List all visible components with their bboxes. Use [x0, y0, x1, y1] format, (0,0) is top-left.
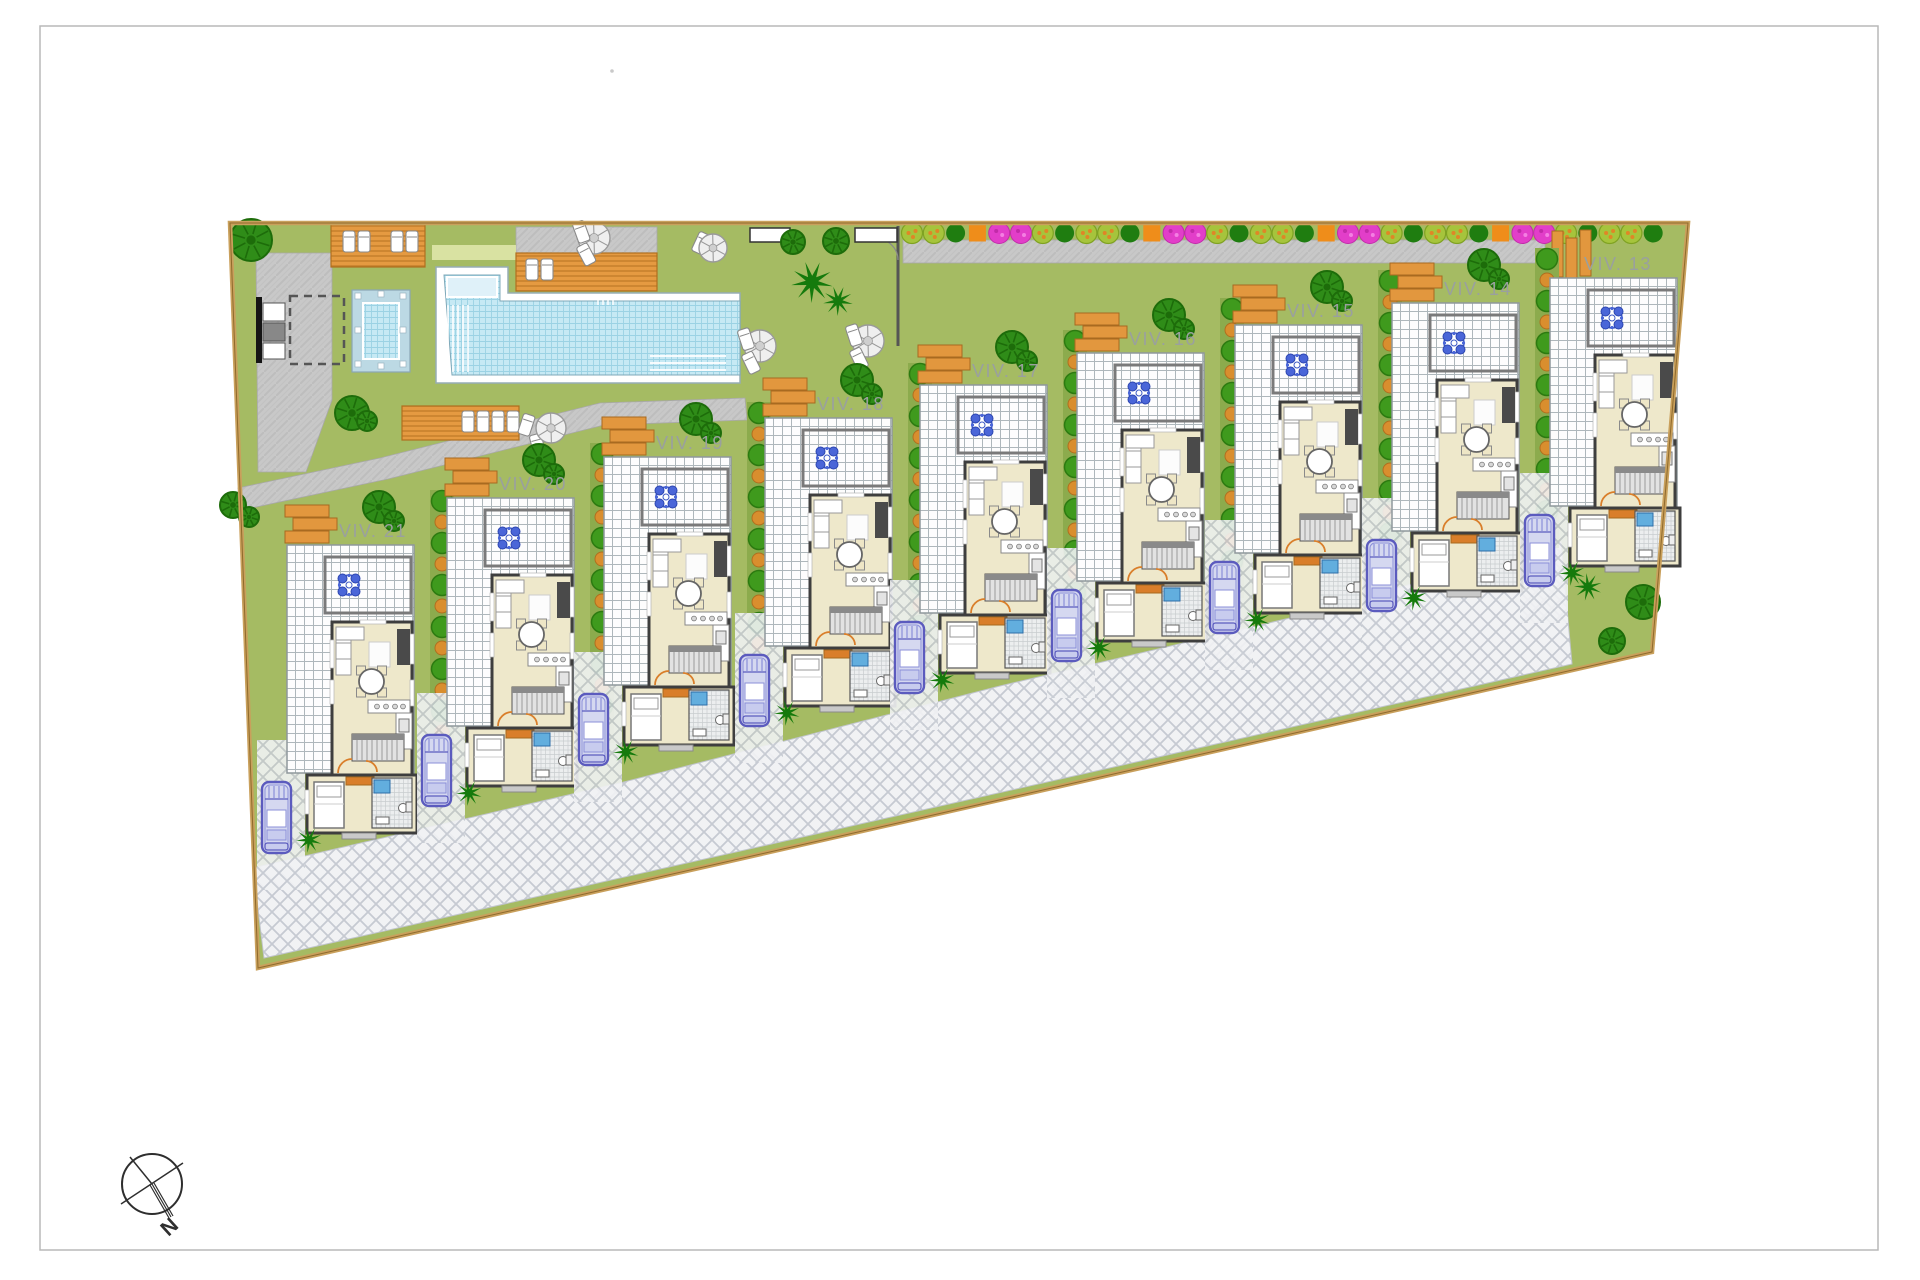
- sink: [559, 672, 569, 685]
- bush-dark: [1121, 224, 1140, 243]
- parasol-icon: [536, 413, 566, 443]
- bush-dark: [1055, 224, 1074, 243]
- bush-dark: [1404, 224, 1423, 243]
- tree-icon: [230, 219, 272, 261]
- spa-pool: [352, 290, 410, 372]
- stairs: [830, 607, 882, 634]
- wardrobe: [346, 777, 374, 785]
- planter-box: [1390, 289, 1434, 301]
- bathroom: [532, 731, 572, 781]
- bathroom: [1477, 536, 1517, 586]
- fountain-icon: [498, 527, 520, 549]
- sun-lounger-icon: [492, 411, 504, 432]
- sun-lounger-icon: [343, 231, 355, 252]
- rug: [1474, 400, 1495, 425]
- bush-lime: [1098, 223, 1119, 244]
- bush-lime: [923, 223, 944, 244]
- entry-step: [820, 706, 854, 712]
- bed: [474, 735, 504, 781]
- wardrobe: [663, 689, 691, 697]
- rug: [529, 595, 550, 620]
- dining-table: [676, 581, 701, 606]
- dining-table: [1622, 402, 1647, 427]
- car-icon: [422, 735, 451, 806]
- bathroom: [372, 778, 412, 828]
- flower-magenta: [1011, 223, 1032, 244]
- flower-magenta: [1338, 223, 1359, 244]
- tv-unit: [397, 629, 410, 665]
- villa-label: VIV. 20: [499, 474, 567, 494]
- fountain-icon: [816, 447, 838, 469]
- flower-magenta: [1163, 223, 1184, 244]
- planter-box: [602, 417, 646, 429]
- tv-unit: [1502, 387, 1515, 423]
- stairs: [669, 646, 721, 673]
- sink: [877, 592, 887, 605]
- entry-step: [1132, 641, 1166, 647]
- bush-lime: [1599, 223, 1620, 244]
- wardrobe: [1294, 557, 1322, 565]
- dining-table: [359, 669, 384, 694]
- bush-dark: [1230, 224, 1249, 243]
- shower: [691, 692, 707, 705]
- sink: [716, 631, 726, 644]
- sink: [1347, 499, 1357, 512]
- rug: [1159, 450, 1180, 475]
- stairs: [1615, 467, 1667, 494]
- fountain-icon: [1601, 307, 1623, 329]
- stairs: [1457, 492, 1509, 519]
- tree-icon: [781, 230, 805, 254]
- villa-label: VIV. 21: [339, 521, 407, 541]
- bathroom: [1162, 586, 1202, 636]
- fountain-icon: [1286, 354, 1308, 376]
- tv-unit: [1660, 362, 1673, 398]
- car-icon: [1367, 540, 1396, 611]
- sun-lounger-icon: [477, 411, 489, 432]
- rug: [686, 554, 707, 579]
- wardrobe: [1451, 535, 1479, 543]
- flower-magenta: [989, 223, 1010, 244]
- bush-lime: [1250, 223, 1271, 244]
- fountain-icon: [1443, 332, 1465, 354]
- sun-lounger-icon: [507, 411, 519, 432]
- bush-dark: [1644, 224, 1663, 243]
- bed: [947, 622, 977, 668]
- bush-dark: [1469, 224, 1488, 243]
- planter-box: [285, 531, 329, 543]
- wardrobe: [506, 730, 534, 738]
- flower-orange: [1143, 225, 1160, 242]
- bathroom: [1005, 618, 1045, 668]
- bed: [1104, 590, 1134, 636]
- bush-lime: [1272, 223, 1293, 244]
- bush-lime: [1032, 223, 1053, 244]
- shower: [1637, 513, 1653, 526]
- planter-box: [1241, 298, 1285, 310]
- dining-table: [519, 622, 544, 647]
- planter-box: [1083, 326, 1127, 338]
- tv-unit: [714, 541, 727, 577]
- planter-box: [285, 505, 329, 517]
- entry-step: [1605, 566, 1639, 572]
- sun-lounger-icon: [358, 231, 370, 252]
- planter-box: [1233, 311, 1277, 323]
- car-icon: [1525, 515, 1554, 586]
- parasol-icon: [699, 234, 727, 262]
- fountain-icon: [1128, 382, 1150, 404]
- tv-unit: [557, 582, 570, 618]
- dining-table: [837, 542, 862, 567]
- fountain-icon: [971, 414, 993, 436]
- bed: [1577, 515, 1607, 561]
- planter-box: [453, 471, 497, 483]
- car-icon: [579, 694, 608, 765]
- planter-box: [1233, 285, 1277, 297]
- bathroom: [850, 651, 890, 701]
- car-icon: [262, 782, 291, 853]
- stairs: [1142, 542, 1194, 569]
- planter-box: [1566, 238, 1577, 284]
- planter-box: [445, 458, 489, 470]
- wardrobe: [824, 650, 852, 658]
- planter-box: [763, 404, 807, 416]
- flower-orange: [1492, 225, 1509, 242]
- villa-label: VIV. 14: [1444, 279, 1512, 299]
- shower: [534, 733, 550, 746]
- bush-lime: [902, 223, 923, 244]
- bathroom: [1635, 511, 1675, 561]
- bush-lime: [1381, 223, 1402, 244]
- planter-box: [918, 345, 962, 357]
- sun-lounger-icon: [462, 411, 474, 432]
- flower-magenta: [1359, 223, 1380, 244]
- car-icon: [740, 655, 769, 726]
- planter-box: [445, 484, 489, 496]
- car-icon: [895, 622, 924, 693]
- bush-dark: [1295, 224, 1314, 243]
- shower: [1322, 560, 1338, 573]
- car-icon: [1052, 590, 1081, 661]
- tv-unit: [1345, 409, 1358, 445]
- villa-label: VIV. 17: [972, 361, 1040, 381]
- flower-magenta: [1185, 223, 1206, 244]
- stairs: [512, 687, 564, 714]
- sink: [399, 719, 409, 732]
- planter-box: [918, 371, 962, 383]
- wardrobe: [1609, 510, 1637, 518]
- tree-icon: [823, 228, 849, 254]
- entry-step: [1290, 613, 1324, 619]
- shower: [1007, 620, 1023, 633]
- entry-step: [1447, 591, 1481, 597]
- entry-step: [342, 833, 376, 839]
- shower: [852, 653, 868, 666]
- tree-icon: [1599, 628, 1625, 654]
- wardrobe: [979, 617, 1007, 625]
- rug: [1317, 422, 1338, 447]
- sun-lounger-icon: [541, 259, 553, 280]
- villa-label: VIV. 19: [656, 433, 724, 453]
- car-icon: [1210, 562, 1239, 633]
- stairs: [1300, 514, 1352, 541]
- page-speck: [610, 69, 614, 73]
- planter-box: [1398, 276, 1442, 288]
- dining-table: [1149, 477, 1174, 502]
- stairs: [352, 734, 404, 761]
- sun-lounger-icon: [391, 231, 403, 252]
- bathroom: [689, 690, 729, 740]
- tv-unit: [1030, 469, 1043, 505]
- rug: [369, 642, 390, 667]
- bed: [314, 782, 344, 828]
- rug: [1002, 482, 1023, 507]
- site-plan: VIV. 21 VIV. 20: [0, 0, 1920, 1280]
- dining-table: [992, 509, 1017, 534]
- tv-unit: [1187, 437, 1200, 473]
- planter-box: [771, 391, 815, 403]
- villa-label: VIV. 13: [1584, 254, 1652, 274]
- flower-orange: [1318, 225, 1335, 242]
- flower-orange: [969, 225, 986, 242]
- pergola-bench: [855, 228, 897, 242]
- bed: [631, 694, 661, 740]
- rug: [847, 515, 868, 540]
- bush-lime: [1447, 223, 1468, 244]
- sun-lounger-icon: [526, 259, 538, 280]
- bush-lime: [1076, 223, 1097, 244]
- villa-label: VIV. 15: [1287, 301, 1355, 321]
- flower-magenta: [1512, 223, 1533, 244]
- bush-lime: [1621, 223, 1642, 244]
- entry-step: [502, 786, 536, 792]
- tree-icon: [357, 411, 377, 431]
- planter-box: [1390, 263, 1434, 275]
- rug: [1632, 375, 1653, 400]
- villa-label: VIV. 16: [1129, 329, 1197, 349]
- sink: [1504, 477, 1514, 490]
- bush-lime: [1425, 223, 1446, 244]
- dining-table: [1464, 427, 1489, 452]
- stairs: [985, 574, 1037, 601]
- entry-step: [975, 673, 1009, 679]
- plan-page: VIV. 21 VIV. 20: [0, 0, 1920, 1280]
- shower: [1164, 588, 1180, 601]
- sink: [1189, 527, 1199, 540]
- bed: [1262, 562, 1292, 608]
- bush-lime: [1207, 223, 1228, 244]
- planter-box: [602, 443, 646, 455]
- shower: [1479, 538, 1495, 551]
- dining-table: [1307, 449, 1332, 474]
- planter-box: [926, 358, 970, 370]
- bed: [1419, 540, 1449, 586]
- bathroom: [1320, 558, 1360, 608]
- wardrobe: [1136, 585, 1164, 593]
- planter-box: [1075, 313, 1119, 325]
- shower: [374, 780, 390, 793]
- planter-box: [293, 518, 337, 530]
- fountain-icon: [338, 574, 360, 596]
- villa-label: VIV. 18: [817, 394, 885, 414]
- entry-step: [659, 745, 693, 751]
- bed: [792, 655, 822, 701]
- planter-box: [1075, 339, 1119, 351]
- planter-box: [610, 430, 654, 442]
- bush-dark: [946, 224, 965, 243]
- planter-box: [763, 378, 807, 390]
- lawn-strip-light: [432, 245, 516, 260]
- fountain-icon: [655, 486, 677, 508]
- sun-lounger-icon: [406, 231, 418, 252]
- tv-unit: [875, 502, 888, 538]
- sink: [1032, 559, 1042, 572]
